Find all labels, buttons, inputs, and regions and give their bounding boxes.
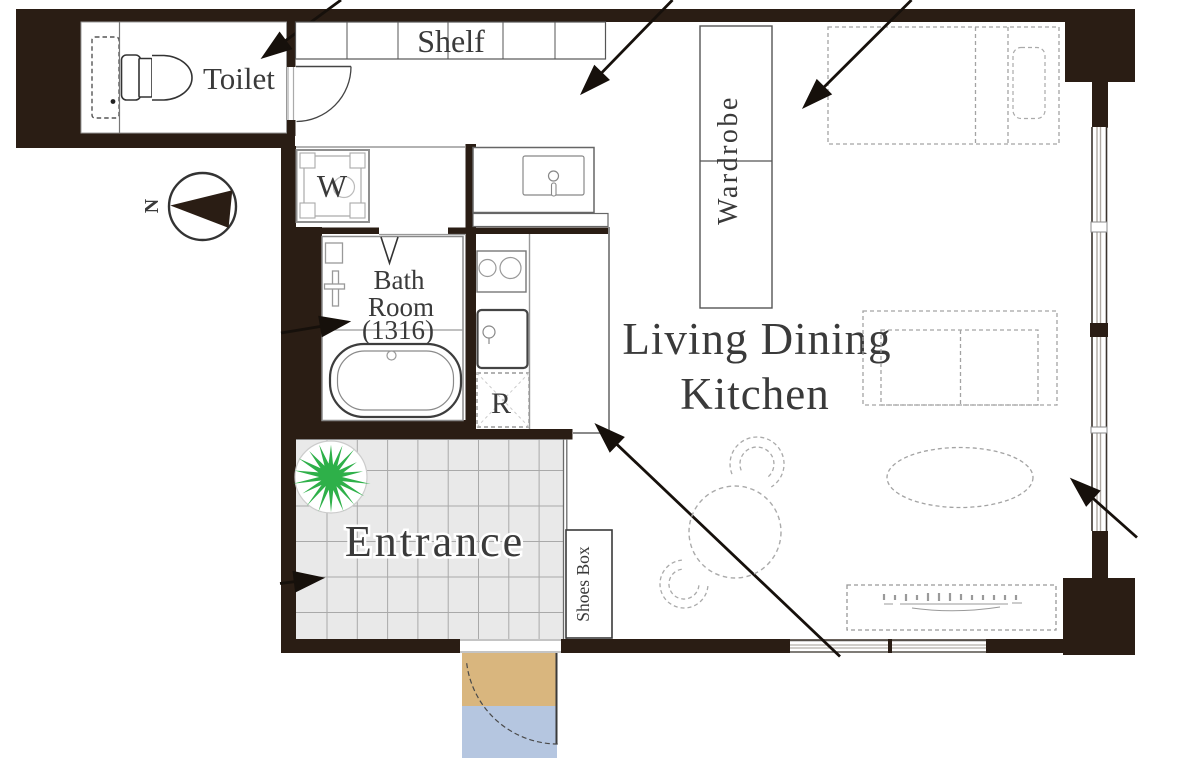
svg-text:(1316): (1316) [362, 315, 434, 345]
svg-text:N: N [141, 198, 163, 213]
svg-text:Bath: Bath [374, 265, 425, 295]
svg-text:R: R [491, 387, 511, 420]
svg-text:Living Dining: Living Dining [622, 314, 891, 364]
svg-text:Entrance: Entrance [345, 517, 525, 566]
svg-text:Shoes Box: Shoes Box [573, 546, 593, 622]
svg-text:Kitchen: Kitchen [680, 369, 829, 419]
svg-text:Toilet: Toilet [203, 61, 275, 96]
svg-text:W: W [317, 168, 348, 204]
svg-text:Wardrobe: Wardrobe [713, 95, 744, 225]
svg-text:Shelf: Shelf [417, 23, 485, 59]
